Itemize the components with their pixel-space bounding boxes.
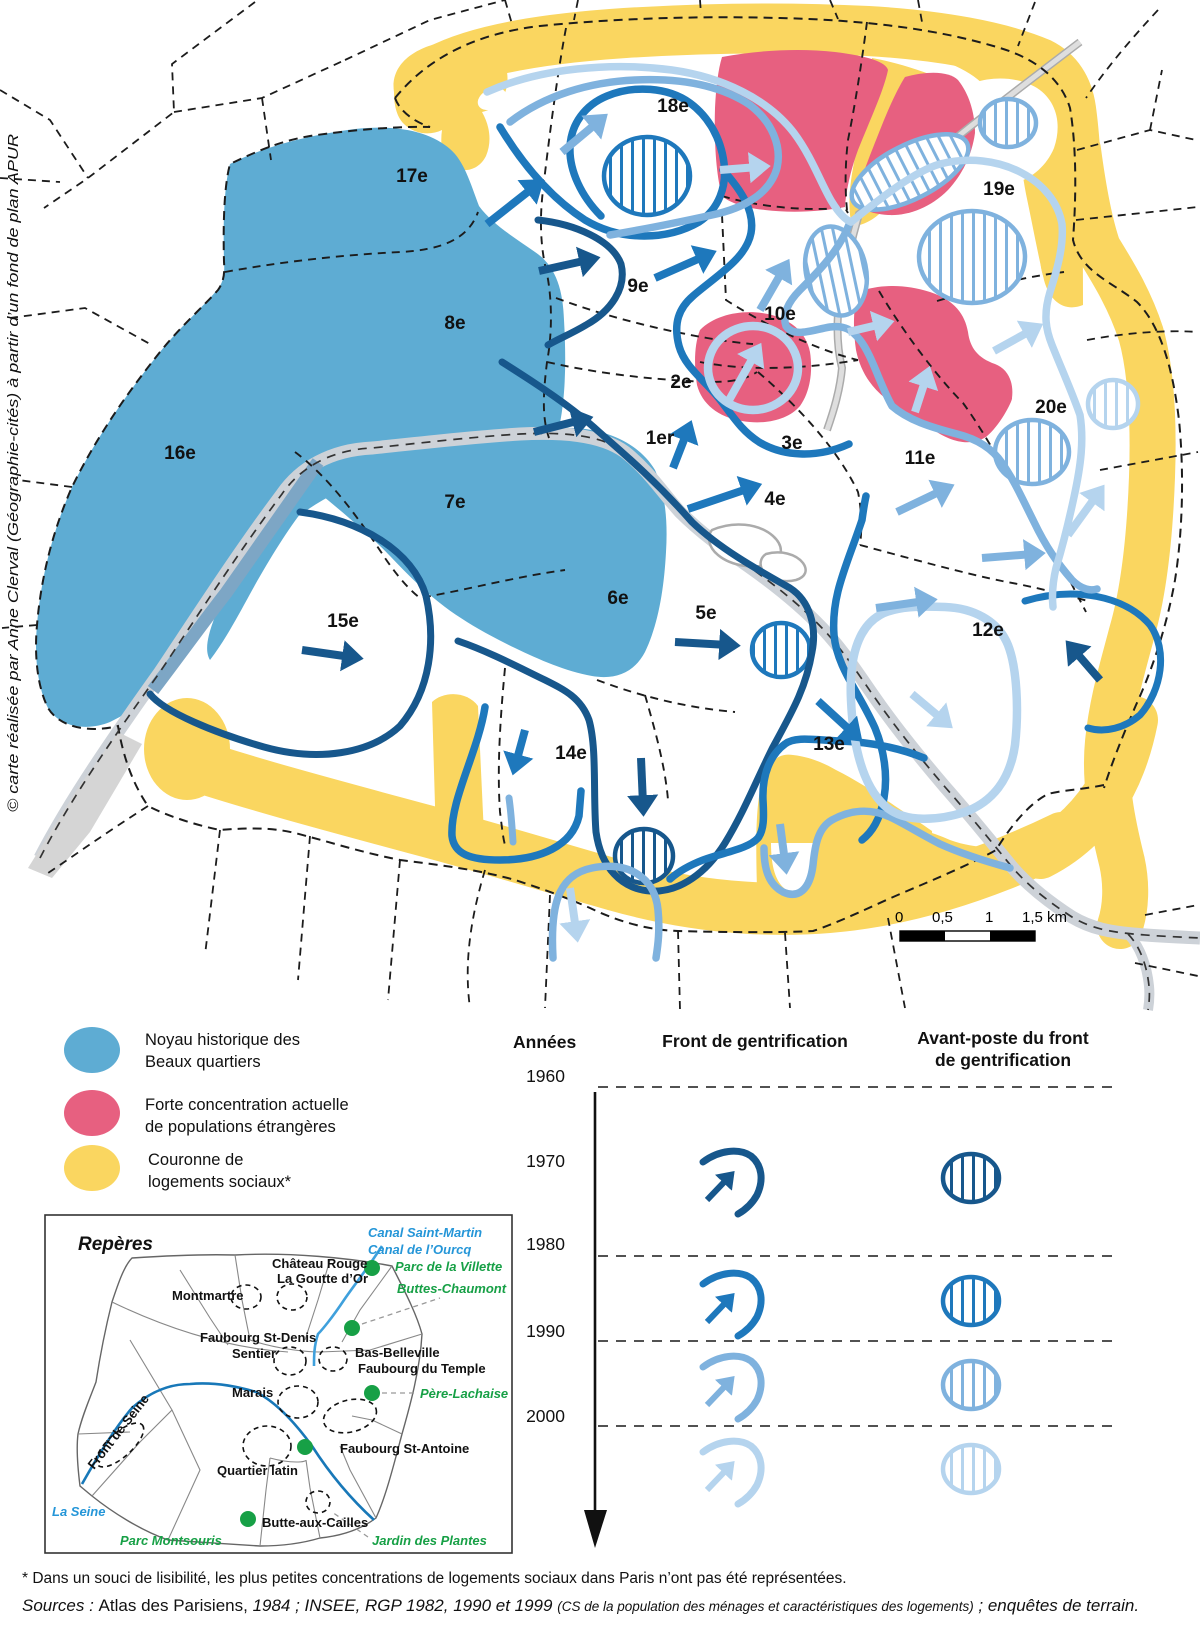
svg-text:3e: 3e	[781, 433, 802, 454]
svg-text:logements sociaux*: logements sociaux*	[148, 1173, 292, 1191]
svg-text:2e: 2e	[670, 372, 691, 393]
svg-text:19e: 19e	[983, 179, 1015, 200]
svg-text:Montmartre: Montmartre	[172, 1288, 244, 1303]
svg-text:Canal de l’Ourcq: Canal de l’Ourcq	[368, 1242, 471, 1257]
svg-text:Butte-aux-Cailles: Butte-aux-Cailles	[262, 1515, 368, 1530]
svg-text:de gentrification: de gentrification	[935, 1050, 1071, 1070]
svg-text:1er: 1er	[646, 428, 675, 449]
svg-text:Quartier latin: Quartier latin	[217, 1463, 298, 1478]
svg-text:14e: 14e	[555, 743, 587, 764]
svg-text:Buttes-Chaumont: Buttes-Chaumont	[397, 1281, 507, 1296]
svg-text:0: 0	[895, 909, 903, 926]
svg-text:Canal Saint-Martin: Canal Saint-Martin	[368, 1225, 482, 1240]
svg-text:© carte réalisée par Anne Cler: © carte réalisée par Anne Clerval (Géogr…	[5, 134, 22, 812]
svg-text:Parc de la Villette: Parc de la Villette	[395, 1259, 502, 1274]
svg-text:4e: 4e	[764, 489, 785, 510]
svg-text:1,5 km: 1,5 km	[1022, 909, 1067, 926]
svg-text:5e: 5e	[695, 603, 716, 624]
svg-text:2000: 2000	[526, 1406, 565, 1426]
svg-text:8e: 8e	[444, 313, 465, 334]
svg-text:Couronne de: Couronne de	[148, 1151, 243, 1169]
svg-text:Château Rouge: Château Rouge	[272, 1256, 367, 1271]
svg-text:Sentier: Sentier	[232, 1346, 276, 1361]
svg-text:0,5: 0,5	[932, 909, 953, 926]
svg-text:Sources : Atlas des Parisiens,: Sources : Atlas des Parisiens, 1984 ; IN…	[22, 1596, 1139, 1615]
svg-text:Noyau historique des: Noyau historique des	[145, 1031, 300, 1049]
svg-text:Avant-poste du front: Avant-poste du front	[917, 1028, 1089, 1048]
svg-text:1970: 1970	[526, 1151, 565, 1171]
svg-text:Faubourg St-Antoine: Faubourg St-Antoine	[340, 1441, 469, 1456]
svg-text:16e: 16e	[164, 443, 196, 464]
svg-text:Bas-Belleville: Bas-Belleville	[355, 1345, 440, 1360]
svg-text:7e: 7e	[444, 492, 465, 513]
svg-text:Faubourg St-Denis: Faubourg St-Denis	[200, 1330, 316, 1345]
svg-text:La Seine: La Seine	[52, 1504, 105, 1519]
svg-text:Front de gentrification: Front de gentrification	[662, 1031, 848, 1051]
svg-text:Repères: Repères	[78, 1234, 153, 1255]
svg-text:17e: 17e	[396, 166, 428, 187]
svg-text:Jardin des Plantes: Jardin des Plantes	[372, 1533, 487, 1548]
svg-text:15e: 15e	[327, 611, 359, 632]
svg-text:La Goutte d’Or: La Goutte d’Or	[277, 1271, 368, 1286]
svg-text:18e: 18e	[657, 96, 689, 117]
svg-text:1: 1	[985, 909, 993, 926]
svg-text:Faubourg du Temple: Faubourg du Temple	[358, 1361, 486, 1376]
svg-text:13e: 13e	[813, 734, 845, 755]
svg-text:1960: 1960	[526, 1066, 565, 1086]
svg-text:* Dans un souci de lisibilité,: * Dans un souci de lisibilité, les plus …	[22, 1570, 847, 1587]
svg-text:10e: 10e	[764, 304, 796, 325]
svg-text:1980: 1980	[526, 1234, 565, 1254]
svg-text:11e: 11e	[905, 448, 936, 469]
svg-text:20e: 20e	[1035, 397, 1067, 418]
svg-text:Marais: Marais	[232, 1385, 273, 1400]
svg-text:Beaux quartiers: Beaux quartiers	[145, 1053, 261, 1071]
svg-text:1990: 1990	[526, 1321, 565, 1341]
svg-text:Années: Années	[513, 1032, 576, 1052]
svg-text:Parc Montsouris: Parc Montsouris	[120, 1533, 222, 1548]
svg-text:de populations étrangères: de populations étrangères	[145, 1118, 336, 1136]
svg-text:12e: 12e	[972, 620, 1004, 641]
svg-text:9e: 9e	[627, 276, 648, 297]
svg-text:6e: 6e	[607, 588, 628, 609]
svg-text:Père-Lachaise: Père-Lachaise	[420, 1386, 508, 1401]
svg-text:Forte concentration actuelle: Forte concentration actuelle	[145, 1096, 349, 1114]
